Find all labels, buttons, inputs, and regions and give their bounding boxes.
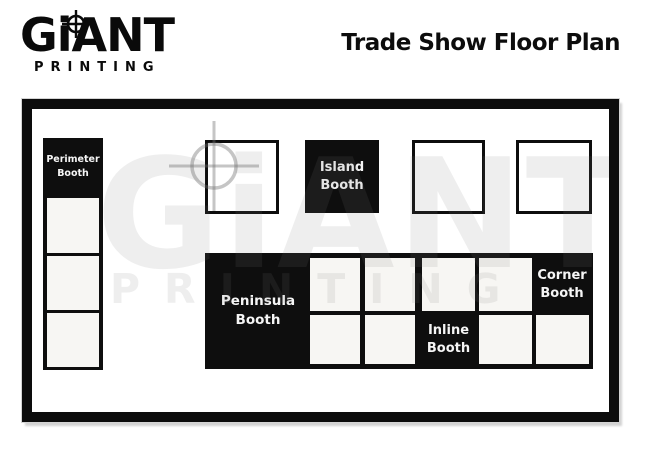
corner-booth-label: Corner Booth [533, 267, 591, 302]
logo-wordmark: GiANT [20, 12, 174, 58]
crosshair-icon [62, 10, 90, 38]
perimeter-booth-cell [47, 313, 99, 367]
inline-booth: Inline Booth [422, 315, 475, 364]
booth-cell [310, 315, 360, 364]
island-booth: Island Booth [305, 140, 379, 213]
perimeter-booth-cell [47, 256, 99, 310]
island-booth-label: Island Booth [305, 159, 379, 194]
booth-box [516, 140, 592, 214]
booth-box [205, 140, 279, 214]
booth-cell [422, 258, 475, 311]
booth-cell [365, 315, 415, 364]
trade-show-floor-plan-page: GiANT PRINTING Trade Show Floor Plan Per… [0, 0, 646, 450]
booth-cell [479, 315, 532, 364]
booth-box [412, 140, 485, 214]
booth-grid-block: Peninsula Booth Corner Booth Inline Boot… [205, 253, 593, 369]
perimeter-booth-label: Perimeter Booth [43, 138, 103, 196]
corner-booth: Corner Booth [533, 258, 591, 311]
booth-cell [365, 258, 415, 311]
booth-cell [536, 315, 589, 364]
giant-printing-logo: GiANT PRINTING [20, 12, 174, 75]
perimeter-booth-strip: Perimeter Booth [43, 138, 103, 370]
page-title: Trade Show Floor Plan [341, 30, 620, 56]
booth-cell [310, 258, 360, 311]
logo-subtext: PRINTING [34, 60, 174, 75]
peninsula-booth-label: Peninsula Booth [205, 253, 311, 369]
floor-plan-frame: Perimeter Booth Island Booth Peninsula B… [22, 99, 619, 422]
booth-cell [479, 258, 532, 311]
inline-booth-label: Inline Booth [422, 322, 475, 357]
perimeter-booth-cell [47, 198, 99, 253]
